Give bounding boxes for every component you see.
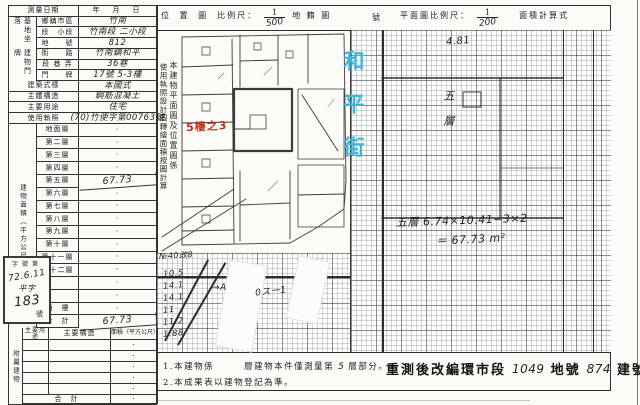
remeasure-lot-no: 1049 [512, 362, 545, 376]
floor-row-value: · [79, 252, 157, 265]
notes-bottom-divider [157, 390, 610, 391]
location-scale-label: 比例尺： [217, 10, 257, 21]
annex-row-construction [49, 340, 111, 351]
floor-row-value: · [79, 188, 157, 201]
annex-header-use: 主要用途 [23, 328, 49, 340]
form-row-value: 36巷 [79, 60, 157, 71]
scrawl-top: №40改8 [159, 249, 194, 262]
floor-row-value: · [79, 149, 157, 162]
floor-row-label: 第九層 [37, 226, 79, 239]
form-row-label: 鄉鎮市區 [37, 17, 79, 28]
floor-plan-drawing [350, 30, 610, 352]
remeasure-label-b: 地號 [551, 359, 581, 378]
stamp-number: 183 [13, 293, 41, 311]
form-row-value: 住宅 [79, 102, 157, 113]
floor-row-label: 第五層 [37, 175, 79, 188]
remeasure-line: 重測後改編環市段 1049 地號 874 建號 [386, 359, 640, 378]
map-note-column-1: 本建物平面圖及位置圖係 [168, 61, 179, 231]
remeasure-label-a: 重測後改編環市段 [386, 359, 506, 378]
form-row-label: 使用執照 [9, 113, 79, 124]
group-site-label: 基地坐落 [9, 17, 37, 49]
annex-row-use [23, 362, 49, 373]
stamp-header: 字號第 [12, 259, 42, 268]
stamp-date: 72.6.11 [7, 268, 46, 284]
annex-header-area: 面積（平方公尺） [111, 328, 158, 340]
note-line-2: 2.本成果表以建物登記為準。 [163, 376, 294, 388]
form-row-label: 建築式樣 [9, 81, 79, 92]
floor-row-label: 第七層 [37, 201, 79, 214]
left-form: 測量日期年 月 日鄉鎮市區竹南段 小段竹南段 二小段地 號812街 路竹南鎮和平… [8, 5, 157, 405]
floor-row-label: 第八層 [37, 213, 79, 226]
floor-row-label: 第十層 [37, 239, 79, 252]
floor-row-label: 第四層 [37, 162, 79, 175]
form-row-value: 17號 5-3樓 [79, 70, 157, 81]
scrawl-number-column: 10.514.114.11111.21.88 [163, 268, 184, 340]
scrawl-mark-a: →A [212, 283, 227, 293]
form-row-value: 鋼筋混凝土 [79, 92, 157, 103]
group-annex-label: 附屬建物 [9, 328, 23, 405]
annex-row-use [23, 351, 49, 362]
map-note-column-2: 使用執照設計圖轉繪面積按圖計算 [158, 63, 169, 243]
survey-sheet: 位 置 圖 比例尺： 1 500 地 籍 圖 號 平面圖比例尺： 1 200 面… [0, 0, 640, 405]
remeasure-label-c: 建號 [617, 359, 640, 378]
annex-row-construction [49, 384, 111, 395]
form-row-label: 主體構造 [9, 92, 79, 103]
form-row-label: 測量日期 [9, 6, 79, 17]
note1-part-c: 層部分。 [348, 360, 388, 372]
location-map: 本建物平面圖及位置圖係 使用執照設計圖轉繪面積按圖計算 5樓之3 [158, 31, 350, 253]
annex-row-area: · [111, 340, 158, 351]
note1-part-b: 層建物本件僅測量第 [244, 360, 334, 372]
annex-row-use [23, 373, 49, 384]
note1-part-a: 1.本建物係 [163, 360, 214, 372]
form-row-label: 主要用途 [9, 102, 79, 113]
annex-row-construction [49, 362, 111, 373]
location-scale-fraction: 1 500 [264, 8, 285, 28]
form-row-label: 段 小段 [37, 27, 79, 38]
plan-dimension: 4.81 [446, 35, 471, 48]
form-row-label: 街 路 [37, 49, 79, 60]
remeasure-bldg-no: 874 [587, 362, 611, 376]
form-row-label: 門 牌 [37, 70, 79, 81]
annex-header-construction: 主要構造 [49, 328, 111, 340]
form-row-label: 地 號 [37, 38, 79, 49]
annex-row-use [23, 340, 49, 351]
annex-row-construction [49, 373, 111, 384]
form-row-value: 竹南 [79, 17, 157, 28]
floor-row-label: 地面層 [37, 124, 79, 137]
floor-row-value: · [79, 239, 157, 252]
floor-row-value: · [79, 277, 157, 290]
annex-row-area: · [111, 373, 158, 384]
plan-scale-fraction: 1 200 [477, 8, 498, 28]
annex-row-construction [49, 351, 111, 362]
cadastral-map-label: 地 籍 圖 [292, 10, 331, 21]
annex-row-use [23, 384, 49, 395]
annex-row-area: · [111, 384, 158, 395]
paper-edge [637, 0, 638, 405]
annex-row-area: · [111, 351, 158, 362]
floor-row-value: · [79, 264, 157, 277]
form-row-value: 竹南段 二小段 [79, 27, 157, 38]
floor-row-label: 第二層 [37, 137, 79, 150]
floor-row-value: · [79, 213, 157, 226]
floor-row-value: · [79, 201, 157, 214]
area-calc-label: 面積計算式 [519, 10, 569, 21]
group-address-label: 建物門牌 [9, 49, 37, 81]
floor-row-value: · [79, 290, 157, 303]
location-scale-denominator: 500 [265, 17, 283, 29]
form-row-value: (70)竹使字第00763號 [79, 113, 157, 124]
annex-total-label: 合 計 [23, 395, 111, 404]
street-name-label: 和平街 [338, 50, 368, 179]
note-line-1: 1.本建物係 層建物本件僅測量第 5 層部分。 [163, 360, 388, 372]
note1-handwritten-floor: 5 [338, 362, 344, 372]
plan-scale-label: 平面圖比例尺： [400, 10, 470, 21]
note2-text: 2.本成果表以建物登記為準。 [163, 376, 294, 388]
floor-row-label: 第三層 [37, 149, 79, 162]
cadastral-drawing [158, 31, 350, 253]
stamp-suffix: 號 [36, 309, 43, 319]
floor-row-value: · [79, 124, 157, 137]
plan-scale-denominator: 200 [478, 17, 496, 29]
floor-row-label: 第六層 [37, 188, 79, 201]
receipt-stamp: 字號第 72.6.11 平字 183 號 [3, 256, 51, 324]
annex-total-value: · [111, 395, 158, 404]
form-row-label: 段 巷 弄 [37, 60, 79, 71]
plan-room-label: 五層 [440, 90, 456, 140]
top-border [157, 5, 610, 6]
annex-row-area: · [111, 362, 158, 373]
location-map-title: 位 置 圖 [161, 10, 210, 21]
floor-row-value: · [79, 137, 157, 150]
plan-header: 平面圖比例尺： 1 200 面積計算式 [400, 10, 569, 28]
floor-row-value: · [79, 226, 157, 239]
sheet-no-label: 號 [372, 12, 380, 23]
grid-bottom-divider [157, 352, 610, 353]
form-row-value: 竹南鎮和平 [79, 49, 157, 60]
subject-unit-red-label: 5樓之3 [186, 117, 228, 135]
location-map-header: 位 置 圖 比例尺： 1 500 地 籍 圖 [161, 10, 331, 28]
